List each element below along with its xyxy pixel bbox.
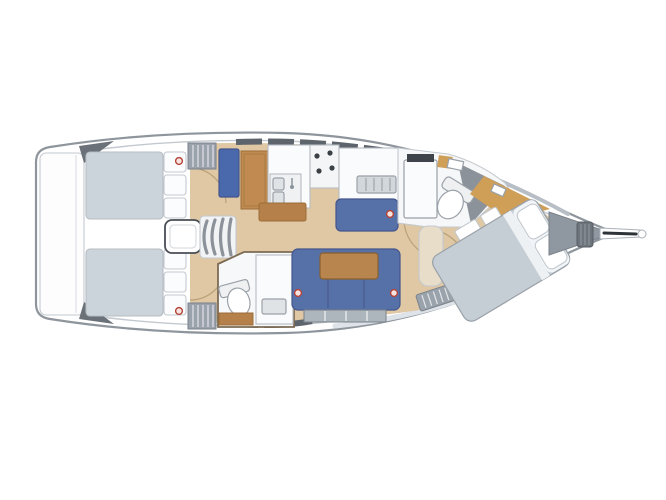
galley-cabinet-wood	[259, 203, 306, 221]
cockpit-backrests-starboard	[164, 249, 186, 315]
stove-burner	[329, 165, 334, 170]
starboard-aft-berth	[188, 303, 216, 329]
cockpit-bench-port	[86, 152, 163, 219]
aft-head-wood-strip	[219, 313, 253, 325]
cockpit-bench-starboard	[86, 249, 163, 316]
vent-marker	[295, 290, 302, 297]
backrest-segment	[164, 272, 186, 292]
salon-table	[320, 253, 378, 279]
sink-basin	[273, 192, 284, 204]
head-sink-cabinet	[404, 160, 437, 218]
stove-burner	[314, 153, 319, 158]
stove-burner	[327, 150, 332, 155]
bowsprit-tip	[638, 230, 646, 238]
vent-marker	[391, 290, 398, 297]
bowsprit-bar	[604, 233, 636, 234]
vent-marker	[387, 211, 394, 218]
deck-plan-canvas	[0, 0, 666, 500]
chart-table	[241, 151, 268, 209]
vent-marker	[176, 158, 183, 165]
sailboat-floorplan	[0, 0, 666, 500]
companionway-steps	[200, 216, 236, 258]
port-aft-berth	[188, 143, 216, 169]
sink-faucet-base	[290, 185, 294, 189]
backrest-segment	[164, 198, 186, 218]
stove-burner	[316, 168, 321, 173]
vent-marker	[176, 308, 183, 315]
berth-mattress-striped	[188, 303, 216, 329]
swim-platform	[40, 153, 84, 315]
sink-basin	[273, 178, 284, 190]
aft-head-sink	[262, 299, 286, 314]
windlass	[577, 222, 593, 247]
head-mirror	[407, 154, 434, 162]
bowsprit	[600, 228, 646, 239]
salon	[292, 249, 400, 322]
under-settee-locker	[304, 310, 386, 322]
aft-head	[218, 252, 294, 327]
berth-mattress-striped	[188, 143, 216, 169]
backrest-segment	[164, 175, 186, 195]
nav-seat	[219, 149, 239, 197]
galley-stove	[310, 145, 339, 188]
